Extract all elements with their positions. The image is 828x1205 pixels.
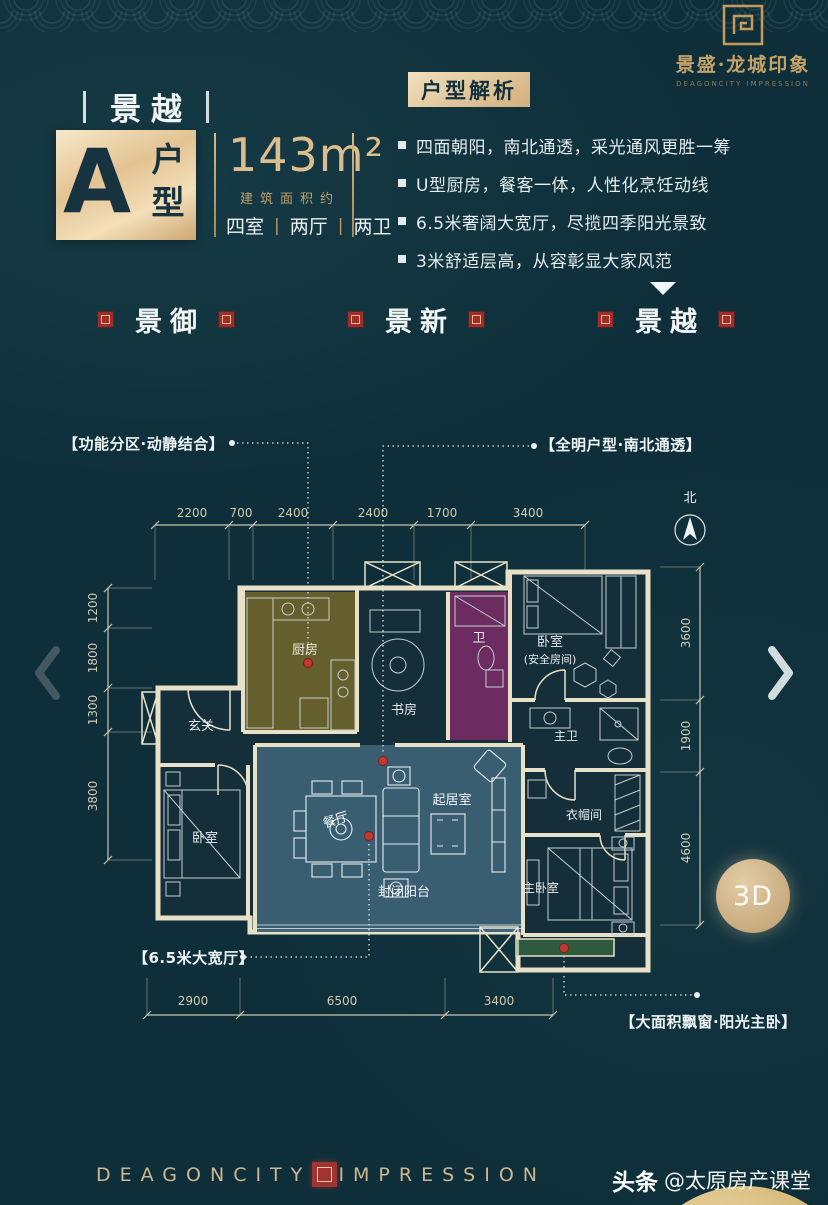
svg-text:主卧室: 主卧室 xyxy=(523,880,559,895)
svg-text:6500: 6500 xyxy=(327,994,358,1008)
unit-type-suffix: 户型 xyxy=(141,142,189,228)
svg-text:3400: 3400 xyxy=(513,506,544,520)
unit-area-note: 建筑面积约 xyxy=(240,188,340,207)
tab-jingyu[interactable]: 景御 xyxy=(98,300,234,339)
analysis-text: U型厨房，餐客一体，人性化烹饪动线 xyxy=(416,171,709,196)
bullet-square-icon xyxy=(398,179,406,187)
bullet-square-icon xyxy=(398,141,406,149)
watermark-logo-text: 头条 xyxy=(612,1163,658,1197)
svg-text:北: 北 xyxy=(683,491,696,506)
svg-text:4600: 4600 xyxy=(679,833,693,864)
prev-arrow[interactable] xyxy=(32,645,62,705)
tab-jingxin[interactable]: 景新 xyxy=(348,300,484,339)
seal-icon xyxy=(719,312,734,327)
analysis-text: 6.5米奢阔大宽厅，尽揽四季阳光景致 xyxy=(416,209,707,234)
svg-text:起居室: 起居室 xyxy=(432,792,471,808)
spec-separator: | xyxy=(274,216,280,236)
spec-rooms: 四室 xyxy=(226,212,264,239)
seal-icon xyxy=(598,312,613,327)
floorplan-poster: 景盛·龙城印象 DEAGONCITY IMPRESSION 景越 A 户型 14… xyxy=(0,0,828,1205)
tab-label: 景新 xyxy=(377,300,455,339)
svg-text:1300: 1300 xyxy=(86,695,100,726)
tab-label: 景越 xyxy=(627,300,705,339)
spec-halls: 两厅 xyxy=(290,212,328,239)
svg-text:1800: 1800 xyxy=(86,643,100,674)
analysis-item: U型厨房，餐客一体，人性化烹饪动线 xyxy=(398,164,808,202)
svg-text:2900: 2900 xyxy=(178,994,209,1008)
gold-divider-left xyxy=(214,133,216,237)
title-bar-right xyxy=(206,91,209,123)
svg-text:卧室: 卧室 xyxy=(537,634,563,650)
svg-text:1900: 1900 xyxy=(679,721,693,752)
bullet-square-icon xyxy=(398,255,406,263)
footer-right-text: IMPRESSION xyxy=(338,1164,546,1186)
series-title-text: 景越 xyxy=(100,84,192,129)
svg-text:衣帽间: 衣帽间 xyxy=(566,807,602,822)
svg-text:700: 700 xyxy=(230,506,253,520)
bullet-square-icon xyxy=(398,217,406,225)
seal-icon xyxy=(469,312,484,327)
brand-name: 景盛·龙城印象 xyxy=(668,50,818,77)
svg-text:封闭阳台: 封闭阳台 xyxy=(378,885,430,900)
active-tab-indicator xyxy=(650,282,676,295)
unit-area: 143m² xyxy=(228,128,384,182)
title-bar-left xyxy=(83,91,86,123)
bath-area xyxy=(450,592,508,740)
analysis-list: 四面朝阳，南北通透，采光通风更胜一筹 U型厨房，餐客一体，人性化烹饪动线 6.5… xyxy=(398,126,808,278)
footer-brand: DEAGONCITY IMPRESSION xyxy=(96,1162,546,1187)
view-3d-button[interactable]: 3D xyxy=(716,859,790,933)
svg-text:卫: 卫 xyxy=(472,631,485,646)
analysis-item: 四面朝阳，南北通透，采光通风更胜一筹 xyxy=(398,126,808,164)
tab-jingyue-active[interactable]: 景越 xyxy=(598,300,734,339)
watermark: 头条 @太原房产课堂 xyxy=(612,1163,811,1197)
footer-seal-icon xyxy=(312,1162,337,1187)
analysis-text: 3米舒适层高，从容彰显大家风范 xyxy=(416,247,672,272)
brand-logo: 景盛·龙城印象 DEAGONCITY IMPRESSION xyxy=(668,4,818,88)
svg-text:主卫: 主卫 xyxy=(554,729,578,743)
svg-text:玄关: 玄关 xyxy=(188,719,214,734)
analysis-text: 四面朝阳，南北通透，采光通风更胜一筹 xyxy=(416,133,731,158)
kitchen-area xyxy=(245,592,357,732)
svg-text:3400: 3400 xyxy=(484,994,515,1008)
north-compass: 北 xyxy=(675,491,705,545)
footer-left-text: DEAGONCITY xyxy=(96,1164,311,1186)
analysis-item: 6.5米奢阔大宽厅，尽揽四季阳光景致 xyxy=(398,202,808,240)
seal-icon xyxy=(348,312,363,327)
svg-text:1700: 1700 xyxy=(427,506,458,520)
svg-text:卧室: 卧室 xyxy=(192,830,218,846)
unit-tabs: 景御 景新 景越 xyxy=(0,300,828,344)
svg-text:厨房: 厨房 xyxy=(292,642,318,658)
seal-icon xyxy=(219,312,234,327)
svg-text:书房: 书房 xyxy=(391,702,417,718)
watermark-account-text: @太原房产课堂 xyxy=(664,1165,811,1195)
svg-text:2400: 2400 xyxy=(358,506,389,520)
brand-subtitle: DEAGONCITY IMPRESSION xyxy=(668,80,818,88)
svg-text:1200: 1200 xyxy=(86,593,100,624)
svg-text:(安全房间): (安全房间) xyxy=(524,652,577,666)
analysis-title-badge: 户型解析 xyxy=(408,72,530,107)
gold-divider-right xyxy=(352,133,354,237)
unit-type-badge: A 户型 xyxy=(56,130,196,240)
unit-type-letter: A xyxy=(63,138,131,226)
spec-baths: 两卫 xyxy=(354,212,392,239)
svg-text:3800: 3800 xyxy=(86,781,100,812)
unit-spec: 四室 | 两厅 | 两卫 xyxy=(226,212,392,239)
seal-icon xyxy=(98,312,113,327)
svg-text:2200: 2200 xyxy=(177,506,208,520)
analysis-item: 3米舒适层高，从容彰显大家风范 xyxy=(398,240,808,278)
svg-text:3600: 3600 xyxy=(679,618,693,649)
next-arrow[interactable] xyxy=(766,645,796,705)
spec-separator: | xyxy=(338,216,344,236)
floor-plan: 2200 700 2400 2400 1700 3400 1200 1800 1… xyxy=(0,430,828,1050)
tab-label: 景御 xyxy=(127,300,205,339)
svg-text:2400: 2400 xyxy=(278,506,309,520)
series-title: 景越 xyxy=(56,84,236,129)
brand-seal-icon xyxy=(722,4,764,46)
